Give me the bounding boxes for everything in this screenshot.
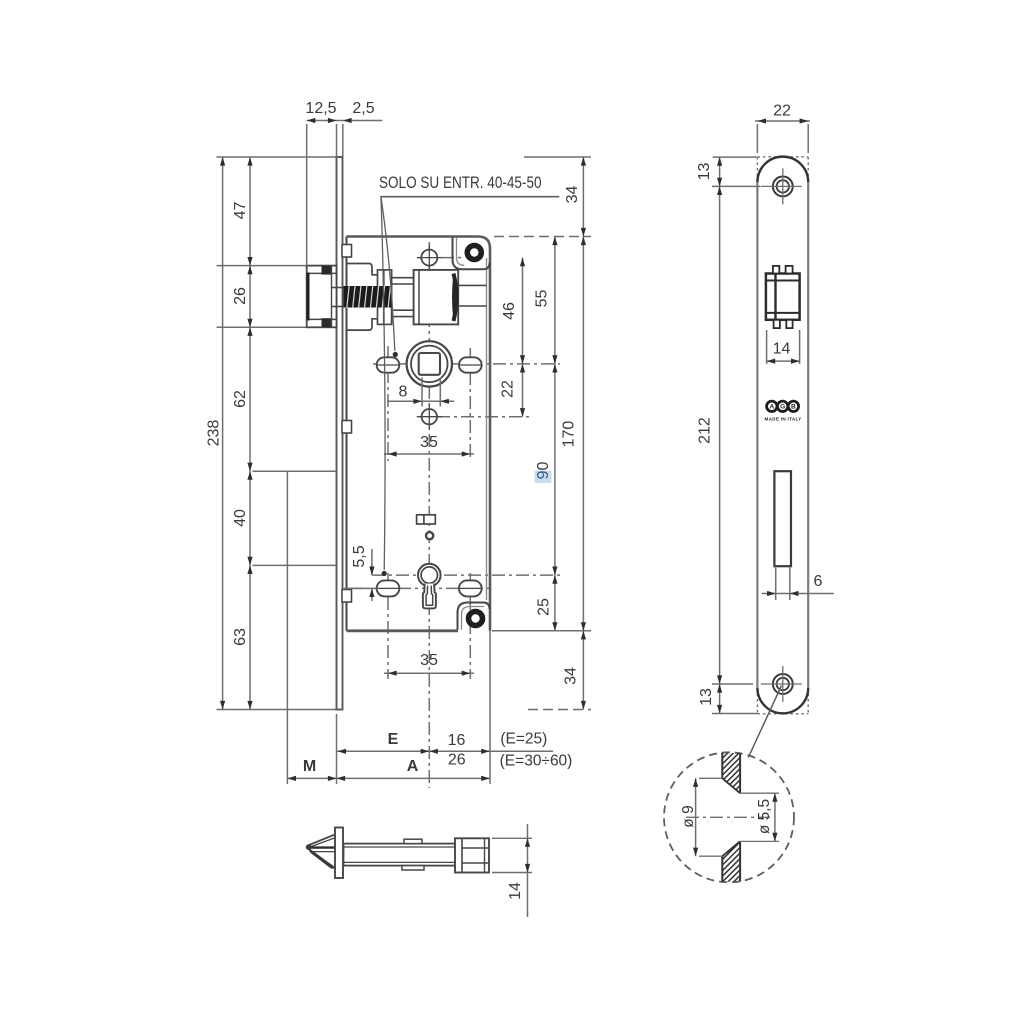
svg-text:ø 9: ø 9 [680,805,697,827]
svg-text:14: 14 [507,882,524,900]
svg-text:13: 13 [696,163,713,181]
svg-text:34: 34 [563,667,580,685]
svg-text:35: 35 [420,434,438,451]
svg-text:5,5: 5,5 [351,545,368,567]
svg-text:G: G [780,403,785,410]
svg-text:A: A [769,403,774,410]
svg-text:212: 212 [697,417,714,444]
svg-text:2,5: 2,5 [352,100,374,117]
svg-text:46: 46 [501,302,518,320]
svg-text:(E=25): (E=25) [500,731,547,748]
svg-text:SOLO SU ENTR. 40-45-50: SOLO SU ENTR. 40-45-50 [379,174,542,192]
svg-text:40: 40 [232,509,249,527]
svg-text:14: 14 [773,341,791,358]
svg-text:35: 35 [420,652,438,669]
svg-text:E: E [388,731,399,748]
svg-text:ø 5,5: ø 5,5 [756,799,773,834]
svg-text:25: 25 [536,598,553,616]
svg-text:M: M [303,758,316,775]
svg-text:26: 26 [448,752,466,769]
svg-text:6: 6 [814,573,823,590]
svg-text:8: 8 [399,384,408,401]
svg-text:170: 170 [561,421,578,448]
svg-text:13: 13 [698,688,715,706]
svg-text:34: 34 [564,186,581,204]
svg-text:12,5: 12,5 [305,100,336,117]
svg-text:A: A [407,758,419,775]
svg-text:47: 47 [232,202,249,220]
svg-text:63: 63 [232,628,249,646]
svg-text:16: 16 [448,732,466,749]
svg-text:(E=30÷60): (E=30÷60) [500,753,573,770]
svg-text:22: 22 [500,380,517,398]
svg-text:B: B [791,403,796,410]
svg-text:26: 26 [232,287,249,305]
svg-text:22: 22 [773,103,791,120]
svg-text:55: 55 [534,290,551,308]
svg-text:90: 90 [535,462,552,480]
svg-text:MADE IN ITALY: MADE IN ITALY [764,417,801,422]
svg-text:238: 238 [206,420,223,447]
svg-text:62: 62 [232,390,249,408]
